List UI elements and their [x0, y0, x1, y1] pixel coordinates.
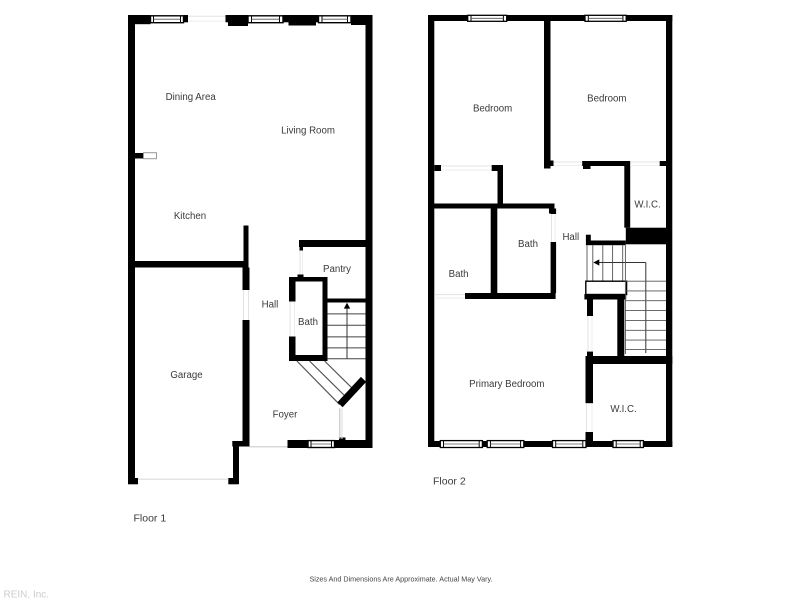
svg-text:Living Room: Living Room: [281, 125, 335, 136]
svg-text:Bedroom: Bedroom: [587, 93, 626, 104]
svg-text:Bath: Bath: [298, 317, 318, 328]
svg-text:Floor 1: Floor 1: [134, 513, 167, 525]
svg-text:Bath: Bath: [518, 239, 538, 250]
svg-text:Pantry: Pantry: [323, 264, 351, 275]
svg-text:Sizes And Dimensions Are Appro: Sizes And Dimensions Are Approximate. Ac…: [309, 574, 492, 583]
svg-text:Bath: Bath: [449, 269, 469, 280]
svg-text:Floor 2: Floor 2: [433, 476, 466, 488]
svg-text:Primary Bedroom: Primary Bedroom: [469, 379, 544, 390]
svg-text:W.I.C.: W.I.C.: [610, 404, 636, 415]
svg-text:Hall: Hall: [262, 299, 279, 310]
svg-text:Foyer: Foyer: [273, 410, 299, 421]
svg-text:Kitchen: Kitchen: [174, 211, 206, 222]
svg-text:Garage: Garage: [170, 370, 202, 381]
svg-text:Dining Area: Dining Area: [166, 92, 217, 103]
svg-text:REIN, Inc.: REIN, Inc.: [4, 590, 50, 600]
svg-text:W.I.C.: W.I.C.: [634, 200, 660, 211]
svg-text:Hall: Hall: [562, 232, 579, 243]
svg-text:Bedroom: Bedroom: [473, 104, 512, 115]
